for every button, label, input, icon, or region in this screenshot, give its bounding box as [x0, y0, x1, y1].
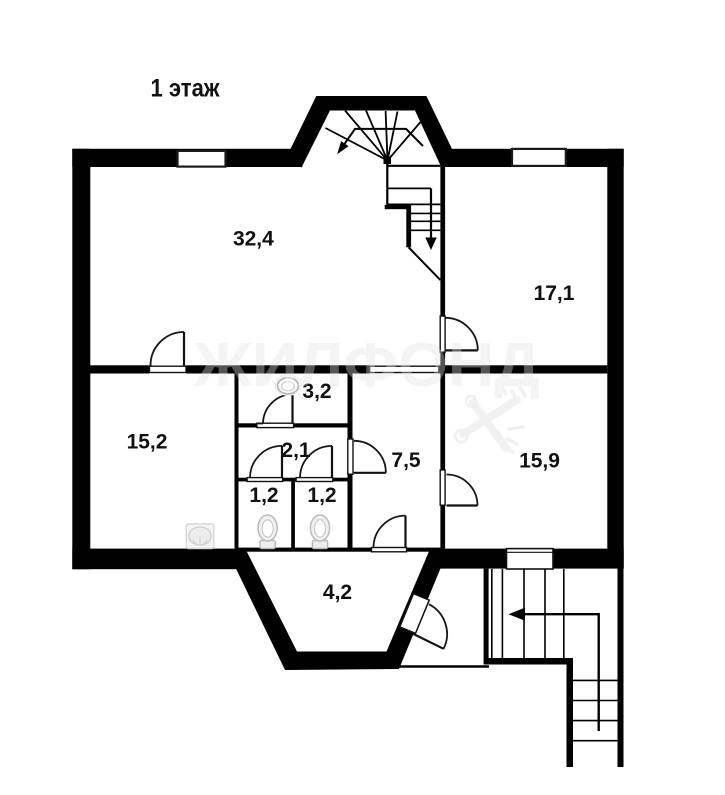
- svg-text:15,2: 15,2: [127, 431, 168, 454]
- svg-text:2,1: 2,1: [281, 439, 311, 462]
- svg-text:32,4: 32,4: [233, 228, 274, 251]
- svg-text:15,9: 15,9: [519, 450, 560, 473]
- svg-text:1,2: 1,2: [307, 484, 336, 507]
- svg-text:4,2: 4,2: [323, 581, 352, 604]
- svg-text:1 этаж: 1 этаж: [151, 74, 220, 102]
- svg-text:17,1: 17,1: [534, 282, 575, 305]
- svg-text:7,5: 7,5: [391, 449, 421, 472]
- svg-text:1,2: 1,2: [249, 484, 278, 507]
- svg-text:ЖИЛФОНД: ЖИЛФОНД: [193, 331, 540, 400]
